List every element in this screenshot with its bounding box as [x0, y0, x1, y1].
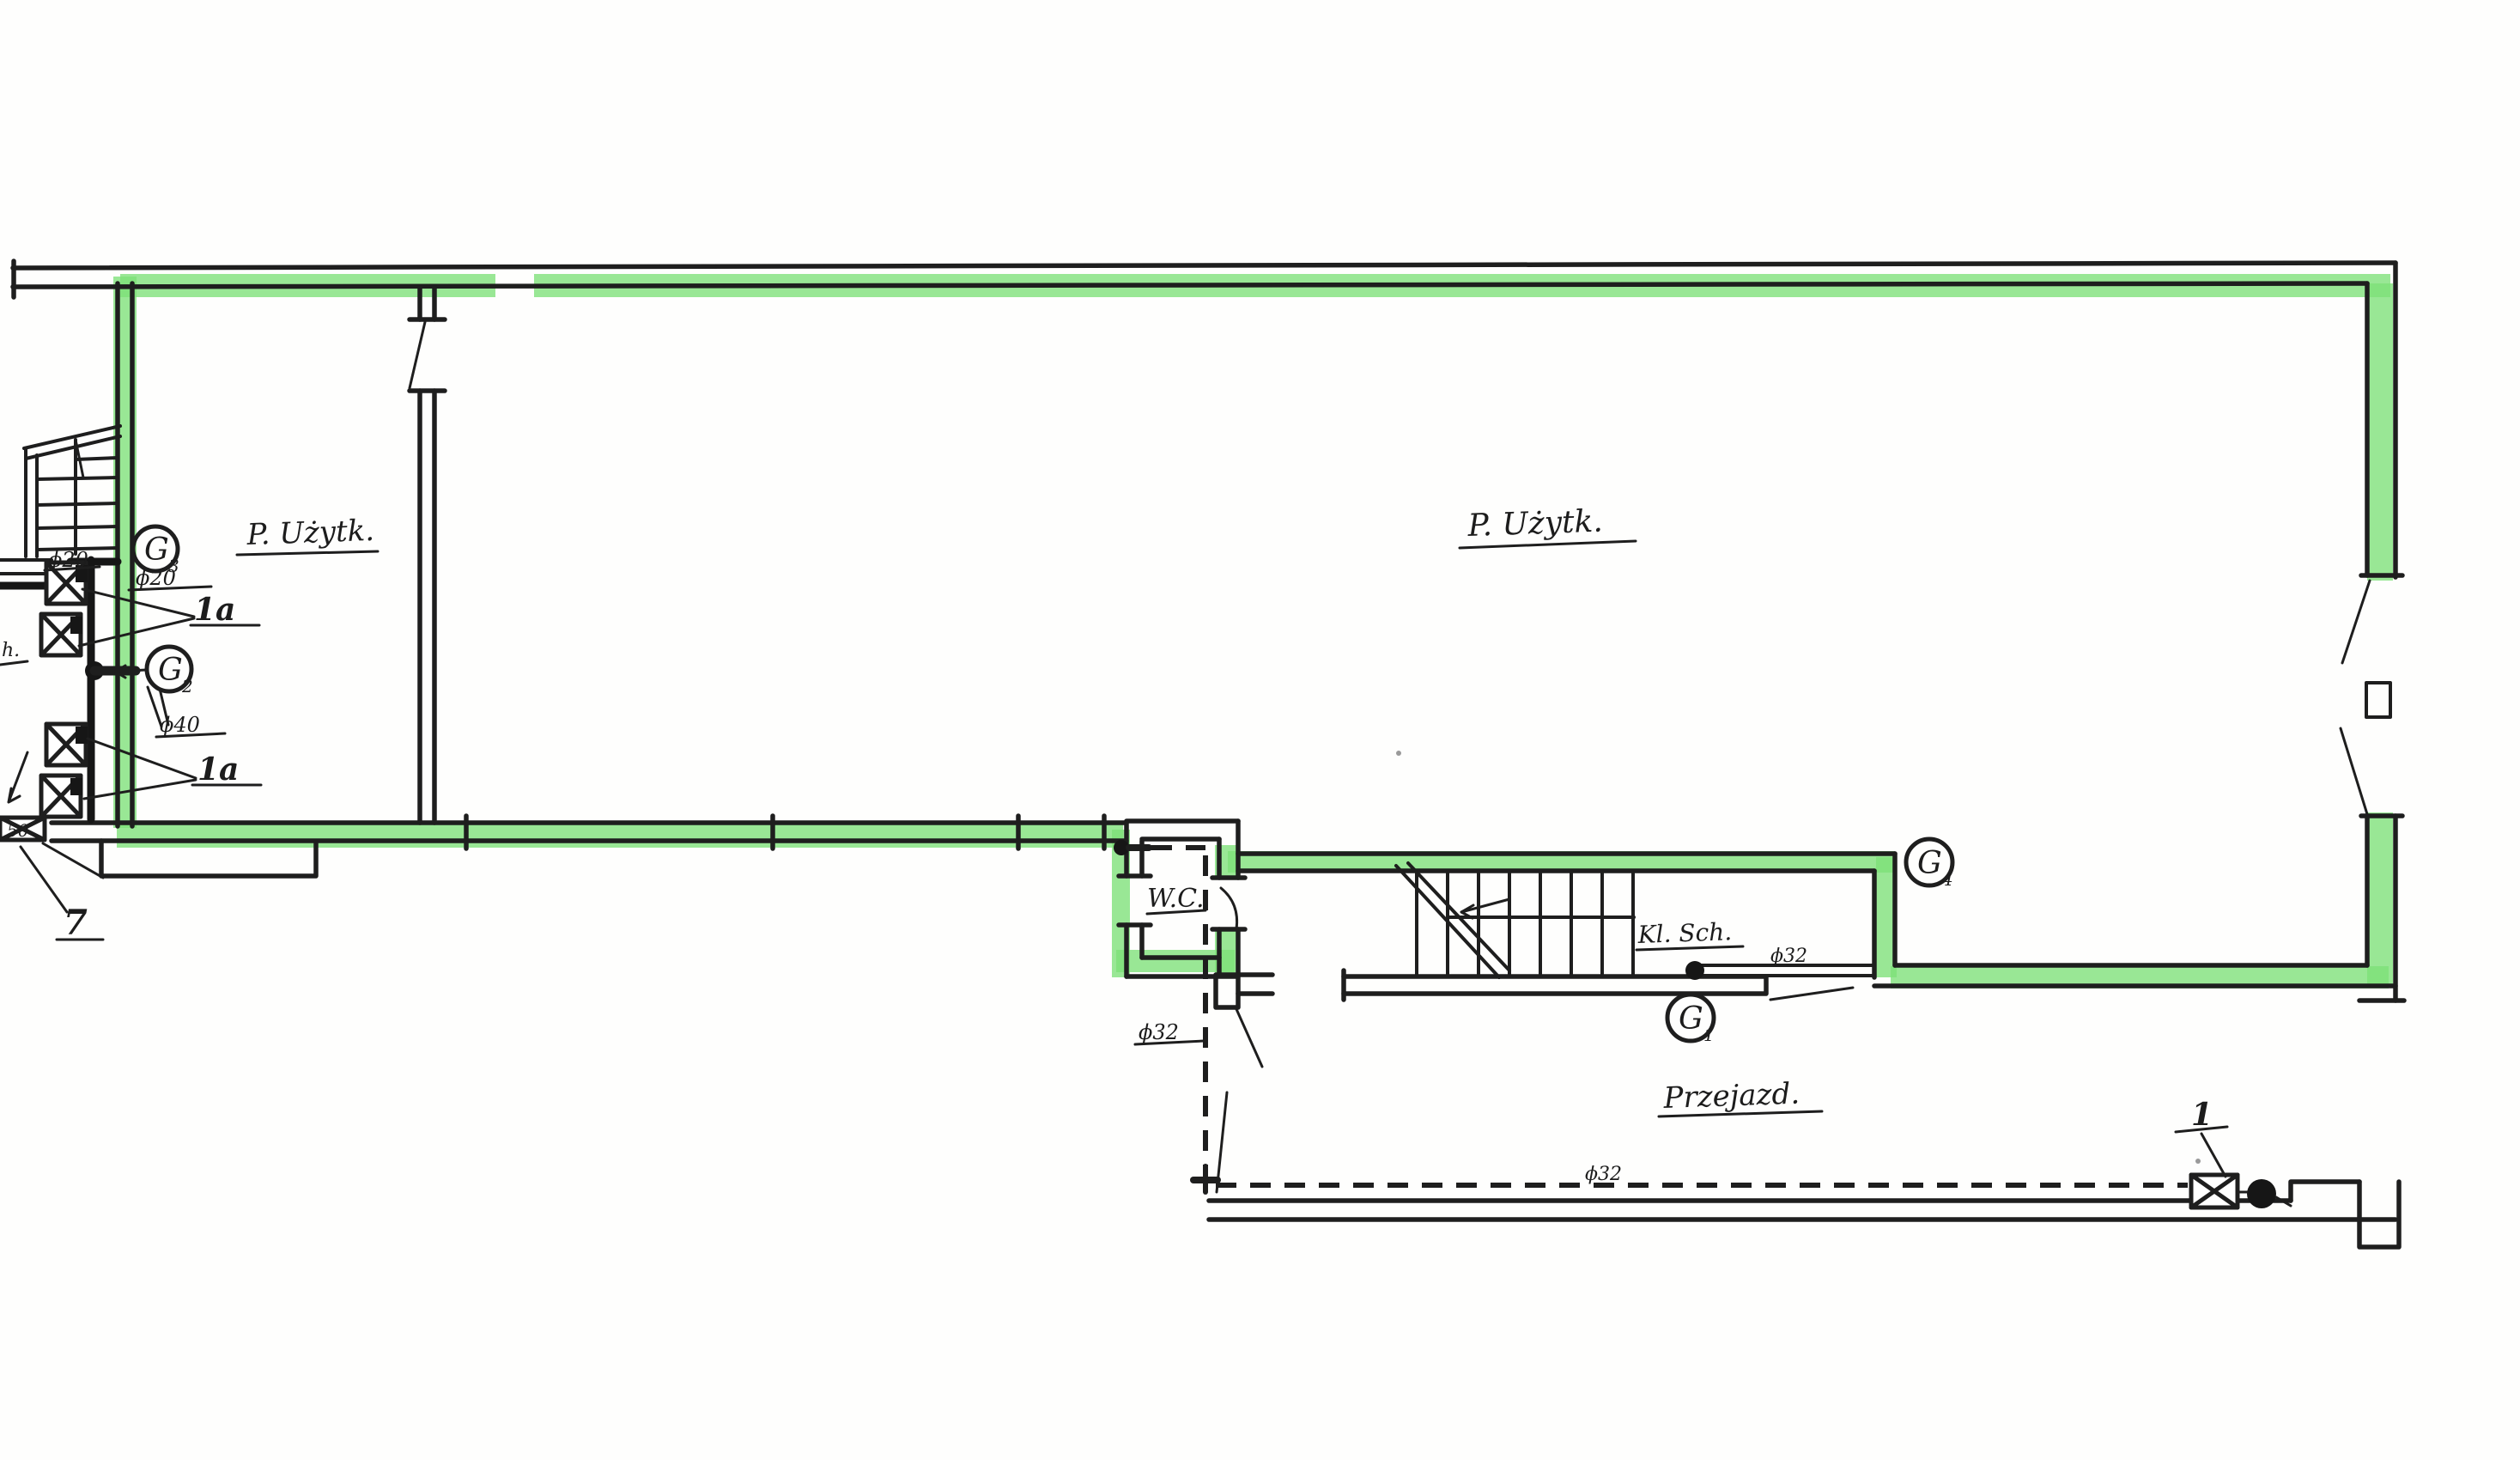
right-wall-door-leaf-lower: [2341, 728, 2367, 814]
gauge-G1: G 1: [1667, 995, 1715, 1045]
leader-1a-lower-a: [88, 739, 196, 778]
room-label-przejazd: Przejazd.: [1662, 1076, 1800, 1116]
passage-corner-pier: [2359, 1182, 2399, 1247]
gauge-symbols: G 3 G 2 G 1 G 4: [133, 526, 1953, 1045]
gauge-G2-letter: G: [158, 653, 183, 688]
leader-1: [2201, 1134, 2225, 1177]
gauge-G3-sub: 3: [168, 556, 179, 576]
gas-meter-fitting-2: [70, 617, 82, 634]
left-stair-rail-2: [26, 436, 120, 459]
pipe-label-phi32-wc: ϕ32: [1139, 1020, 1179, 1044]
walls: [13, 261, 2404, 1247]
leader-1a-lower-b: [84, 780, 196, 799]
gauge-G2-sub: 2: [181, 676, 193, 697]
gauge-G4-sub: 4: [1941, 869, 1953, 890]
vestibule-south-wall: [1238, 975, 1272, 994]
floor-plan-scan: P. Użytk. P. Użytk. W.C. Kl. Sch. Przeja…: [0, 0, 2520, 1460]
gauge-G1-letter: G: [1679, 1001, 1703, 1037]
underline-p-uzytk-left: [237, 551, 378, 555]
entry-valve-1-body: [2247, 1179, 2276, 1208]
underline-partial-left: [0, 661, 27, 665]
room-label-p-uzytk-left: P. Użytk.: [246, 514, 375, 552]
room-label-p-uzytk-right: P. Użytk.: [1466, 504, 1604, 544]
pipe-label-phi20-branch: ϕ20: [48, 548, 88, 572]
gas-meter-fitting-4: [70, 778, 82, 795]
label-partial-left: h.: [2, 640, 20, 661]
left-edge-wall-stub: [0, 560, 52, 574]
partition-door-leaf: [410, 322, 425, 388]
stairhall-south-wall: [1344, 976, 1766, 994]
leader-1a-upper-a: [82, 589, 194, 617]
gas-meter-bank: [41, 563, 88, 817]
doors: [410, 322, 2390, 1067]
wc-right-door-jambs: [1212, 878, 1245, 929]
gas-meter-fitting-3: [76, 727, 88, 744]
right-wall-door-jamb-block: [2366, 683, 2390, 717]
leader-passage-junction: [1217, 1092, 1227, 1192]
vestibule-door-jamb-box: [1216, 975, 1238, 1007]
top-wall-outer: [13, 263, 2396, 268]
stair-direction-arrow: [1461, 899, 1509, 918]
pipe-label-phi32-passage: ϕ32: [1585, 1164, 1622, 1185]
gauge-G3-letter: G: [144, 532, 169, 568]
left-stair-rail-1: [24, 426, 120, 448]
room-label-wc: W.C.: [1147, 884, 1205, 914]
callout-1: 1: [2191, 1097, 2213, 1133]
callout-7: 7: [64, 903, 88, 943]
gauge-G4-letter: G: [1917, 846, 1942, 881]
pipe-label-phi40: ϕ40: [160, 713, 200, 737]
callout-1a-upper: 1a: [194, 592, 235, 628]
speck-1: [1396, 751, 1401, 756]
highlighted-gas-route: [113, 274, 2393, 989]
gauge-G1-sub: 1: [1703, 1025, 1715, 1045]
partition-wall: [420, 391, 434, 823]
wc-door-leaf-arc: [1221, 888, 1237, 929]
speck-2: [2195, 1159, 2201, 1164]
leader-stair-pipe: [1770, 988, 1853, 1000]
pipe-label-phi32-stairs: ϕ32: [1770, 946, 1807, 967]
vestibule-door-leaf: [1236, 1009, 1262, 1067]
gauge-G2: G 2: [147, 647, 193, 697]
label-valve-size-50: 50: [7, 820, 29, 841]
main-stair: [1396, 863, 1634, 977]
arrow-supply-direction: [9, 752, 27, 802]
leader-7: [21, 847, 67, 912]
gauge-G4: G 4: [1906, 839, 1953, 890]
right-wall-door-leaf-upper: [2342, 581, 2370, 663]
floor-plan-drawing: P. Użytk. P. Użytk. W.C. Kl. Sch. Przeja…: [0, 0, 2520, 1460]
stair-pipe-elbow: [1685, 961, 1704, 980]
room-label-kl-sch: Kl. Sch.: [1636, 917, 1733, 949]
passage-wall-step: [2291, 1182, 2359, 1201]
leader-valve50-kerb: [43, 843, 103, 878]
callout-1a-lower: 1a: [197, 751, 239, 788]
